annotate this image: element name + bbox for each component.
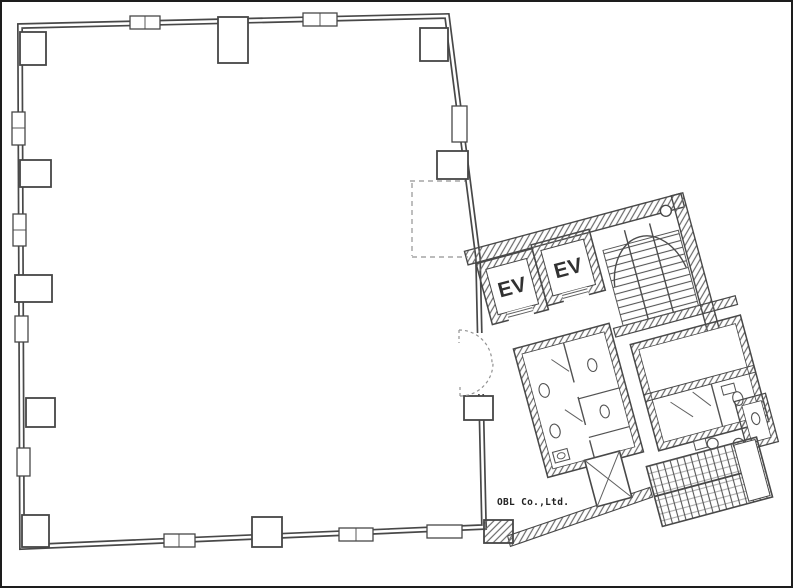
window-marker xyxy=(452,106,467,142)
column xyxy=(15,275,52,302)
window-marker xyxy=(17,448,30,476)
column xyxy=(252,517,282,547)
column xyxy=(464,396,493,420)
floor-plan-svg: EV EV xyxy=(0,0,793,588)
window-marker xyxy=(12,112,25,145)
corner-column xyxy=(484,520,513,543)
watermark-text: OBL Co.,Ltd. xyxy=(497,497,569,508)
column xyxy=(218,17,248,63)
column xyxy=(22,515,49,547)
window-marker xyxy=(15,316,28,342)
column xyxy=(437,151,468,179)
column xyxy=(26,398,55,427)
window-marker xyxy=(164,534,195,547)
column xyxy=(20,32,46,65)
lobby-entrance-opening xyxy=(473,333,488,394)
column xyxy=(20,160,51,187)
column xyxy=(420,28,448,61)
window-marker xyxy=(427,525,462,538)
floor-plan-page: EV EV xyxy=(0,0,793,588)
